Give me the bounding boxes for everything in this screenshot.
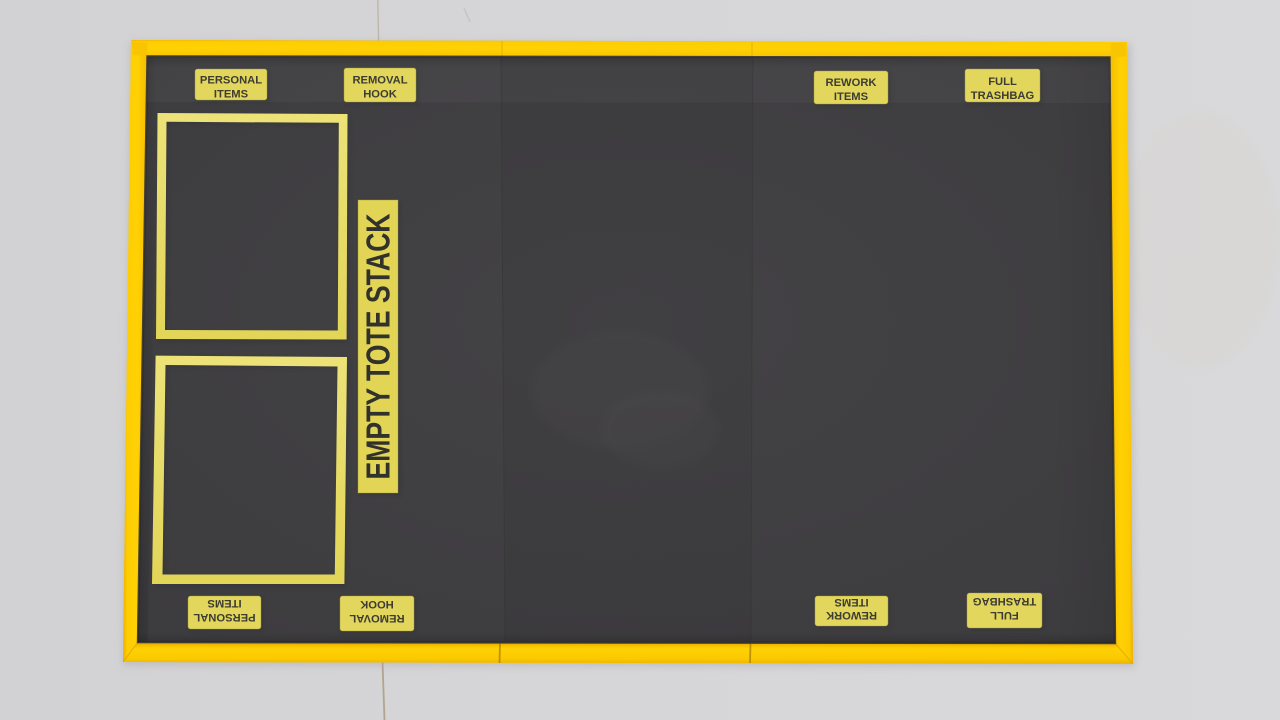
svg-text:REWORK: REWORK	[826, 609, 877, 621]
svg-text:ITEMS: ITEMS	[834, 596, 869, 608]
svg-text:ITEMS: ITEMS	[214, 89, 249, 101]
svg-text:FULL: FULL	[988, 76, 1017, 88]
svg-text:REMOVAL: REMOVAL	[352, 75, 407, 87]
svg-text:TRASHBAG: TRASHBAG	[973, 595, 1037, 607]
svg-text:ITEMS: ITEMS	[207, 597, 242, 609]
svg-text:REWORK: REWORK	[826, 77, 877, 89]
svg-text:TRASHBAG: TRASHBAG	[971, 90, 1035, 102]
svg-text:PERSONAL: PERSONAL	[200, 75, 262, 87]
svg-text:FULL: FULL	[990, 609, 1019, 621]
svg-text:HOOK: HOOK	[363, 89, 397, 101]
svg-text:HOOK: HOOK	[360, 598, 394, 610]
svg-text:REMOVAL: REMOVAL	[349, 612, 404, 624]
svg-text:PERSONAL: PERSONAL	[193, 611, 255, 623]
svg-text:ITEMS: ITEMS	[834, 91, 869, 103]
svg-text:EMPTY TOTE STACK: EMPTY TOTE STACK	[360, 213, 397, 479]
